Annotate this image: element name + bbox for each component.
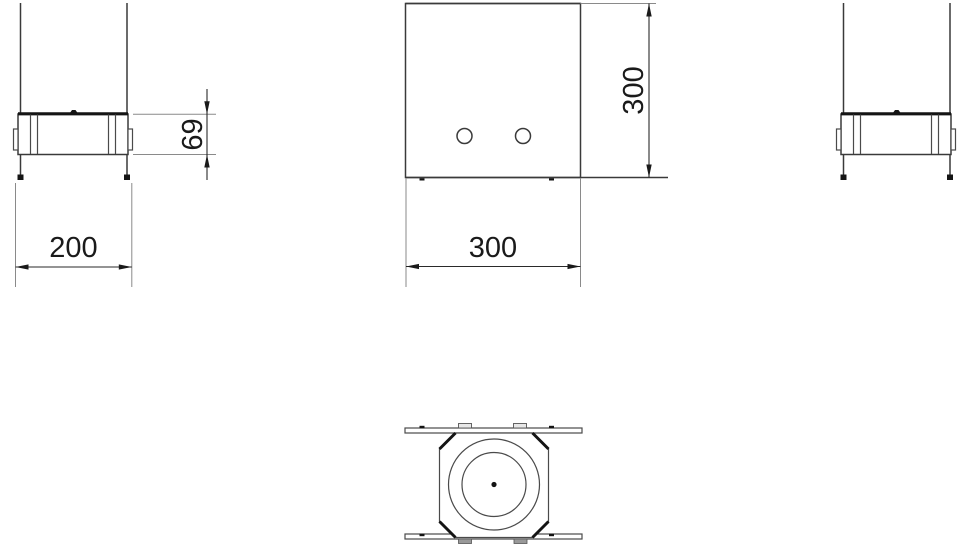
dim-arrow-left bbox=[406, 264, 419, 269]
strap-end-tick-right bbox=[549, 178, 554, 180]
strap-end-tick bbox=[420, 426, 425, 428]
dim-arrow-down bbox=[204, 101, 209, 114]
side-view-left: 69 200 bbox=[14, 3, 217, 287]
rail-tab bbox=[459, 424, 472, 429]
dim-arrow-up bbox=[646, 4, 651, 17]
dim-text-front-height: 300 bbox=[618, 66, 650, 114]
rod-foot-left bbox=[18, 175, 24, 181]
dim-arrow-down bbox=[646, 165, 651, 178]
rail-tab bbox=[514, 539, 527, 544]
rod-foot-right bbox=[947, 175, 953, 181]
side-tab-left bbox=[14, 129, 19, 150]
front-panel bbox=[406, 4, 581, 178]
dim-text-side-width: 200 bbox=[49, 232, 97, 264]
strap-end-tick bbox=[549, 534, 554, 536]
rod-foot-left bbox=[841, 175, 847, 181]
side-tab-left bbox=[837, 129, 842, 150]
dim-arrow-left bbox=[16, 264, 29, 269]
strap-end-tick-left bbox=[420, 178, 425, 180]
filler-knob bbox=[70, 110, 79, 114]
burner-body bbox=[18, 114, 128, 155]
filler-knob bbox=[893, 110, 902, 114]
dim-text-front-width: 300 bbox=[469, 232, 517, 264]
burner-body bbox=[841, 114, 951, 155]
dim-text-side-height: 69 bbox=[177, 118, 209, 150]
plan-view bbox=[405, 424, 582, 544]
side-tab-right bbox=[128, 129, 133, 150]
technical-drawing: 69 200 300 300 bbox=[0, 0, 970, 546]
front-view: 300 300 bbox=[406, 4, 669, 288]
mounting-rail-top bbox=[405, 428, 582, 433]
center-point bbox=[491, 482, 496, 487]
rod-foot-right bbox=[124, 175, 130, 181]
dim-arrow-right bbox=[119, 264, 132, 269]
dim-arrow-up bbox=[204, 155, 209, 168]
rail-tab bbox=[459, 539, 472, 544]
strap-end-tick bbox=[549, 426, 554, 428]
strap-end-tick bbox=[420, 534, 425, 536]
rail-tab bbox=[514, 424, 527, 429]
side-tab-right bbox=[951, 129, 956, 150]
drawing-canvas: 69 200 300 300 bbox=[0, 0, 970, 546]
dim-arrow-right bbox=[568, 264, 581, 269]
side-view-right bbox=[837, 3, 956, 180]
